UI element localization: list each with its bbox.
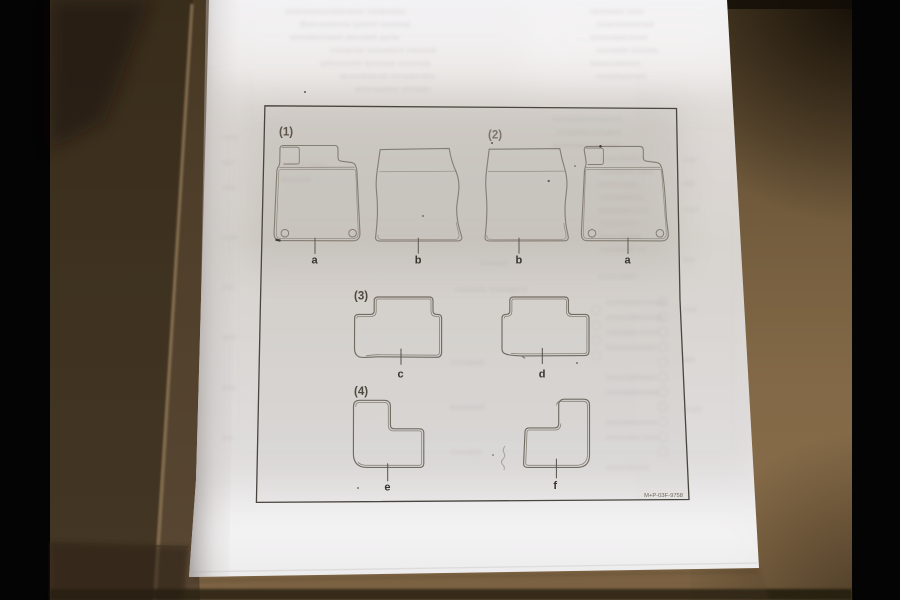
svg-text:nse: nse bbox=[683, 304, 697, 314]
svg-text:nse: nse bbox=[222, 182, 236, 192]
svg-text:M+P-03F-9758: M+P-03F-9758 bbox=[644, 493, 683, 499]
svg-text:d: d bbox=[539, 369, 546, 381]
svg-text:tse: tse bbox=[683, 254, 695, 264]
svg-text:aet: aet bbox=[683, 354, 695, 364]
svg-text:tse: tse bbox=[222, 432, 234, 442]
svg-text:a: a bbox=[312, 255, 319, 267]
svg-text:snmelenraseit aemsleti asnle: snmelenraseit aemsleti asnle bbox=[290, 32, 400, 42]
svg-text:(2): (2) bbox=[488, 130, 502, 142]
svg-text:emsnaletnsmer: emsnaletnsmer bbox=[590, 32, 648, 42]
svg-text:aelmsnrete ilsnmaet emsnela: aelmsnrete ilsnmaet emsnela bbox=[320, 58, 431, 68]
svg-text:nemsalet nem: nemsalet nem bbox=[590, 6, 643, 16]
svg-text:f: f bbox=[553, 480, 557, 492]
svg-text:emlnsaetne slmaetn: emlnsaetne slmaetn bbox=[355, 84, 431, 94]
svg-text:mas: mas bbox=[222, 232, 238, 242]
svg-text:(1): (1) bbox=[279, 127, 293, 139]
svg-text:eml: eml bbox=[222, 332, 236, 342]
svg-text:nseamtel snmateire mlesnat: nseamtel snmateire mlesnat bbox=[330, 45, 437, 55]
svg-text:Bseruestmne tsaeml nseterai: Bseruestmne tsaeml nseterai bbox=[300, 19, 410, 29]
svg-text:b: b bbox=[415, 255, 422, 267]
svg-text:a: a bbox=[625, 255, 632, 267]
svg-text:(4): (4) bbox=[354, 386, 368, 398]
svg-text:temsnaletnes: temsnaletnes bbox=[590, 58, 641, 68]
svg-text:aet: aet bbox=[683, 178, 695, 188]
svg-text:nsmelaetnsm: nsmelaetnsm bbox=[596, 71, 647, 81]
svg-text:rsaemlnetsmae: rsaemlnetsmae bbox=[596, 19, 654, 29]
svg-text:nsmaele tnsmae: nsmaele tnsmae bbox=[596, 45, 659, 55]
svg-text:nsm: nsm bbox=[683, 204, 699, 214]
svg-text:nse: nse bbox=[683, 154, 697, 164]
svg-text:aet: aet bbox=[222, 157, 234, 167]
svg-text:nsa: nsa bbox=[222, 382, 236, 392]
svg-text:nsm: nsm bbox=[222, 132, 238, 142]
svg-text:mset: mset bbox=[683, 404, 702, 414]
svg-text:nst: nst bbox=[222, 282, 234, 292]
svg-text:e: e bbox=[384, 482, 390, 494]
svg-text:(3): (3) bbox=[354, 291, 368, 303]
svg-text:b: b bbox=[516, 255, 523, 267]
svg-text:c: c bbox=[398, 369, 404, 381]
svg-text:moenramsnelamsnet nestmelas: moenramsnelamsnet nestmelas bbox=[285, 6, 405, 16]
svg-text:tsnemlearstn emsalentira: tsnemlearstn emsalentira bbox=[340, 71, 435, 81]
